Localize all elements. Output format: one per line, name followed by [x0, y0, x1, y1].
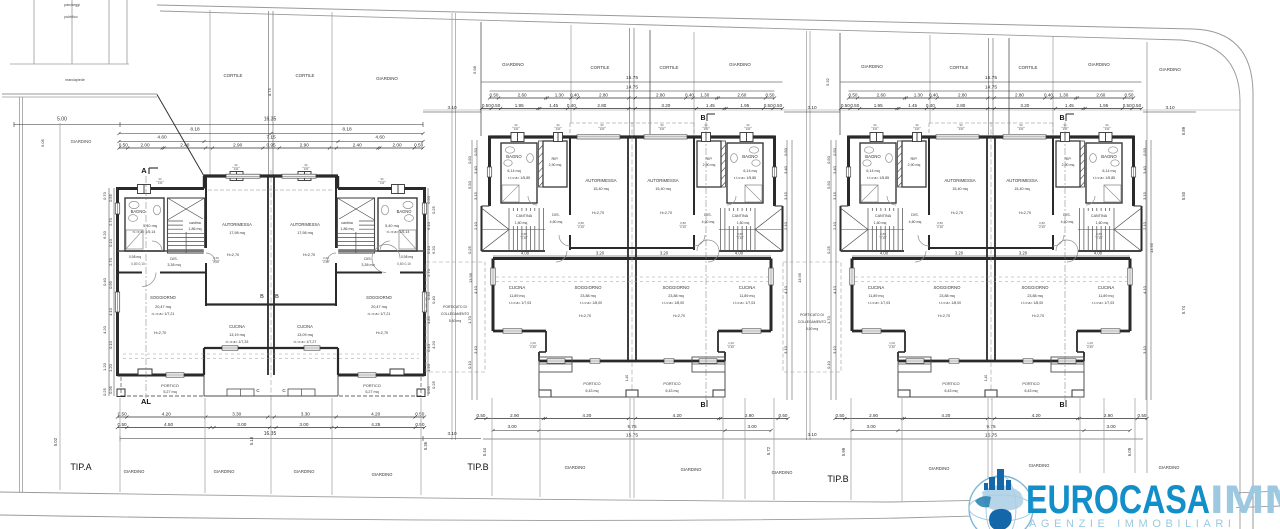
- svg-text:15,40 mq: 15,40 mq: [1014, 187, 1029, 191]
- svg-text:0.50: 0.50: [477, 413, 486, 418]
- svg-text:2,10: 2,10: [1039, 225, 1045, 229]
- svg-text:AUTORIMESSA: AUTORIMESSA: [1006, 178, 1037, 183]
- svg-text:5,27 mq: 5,27 mq: [163, 390, 176, 394]
- svg-text:15.75: 15.75: [985, 75, 998, 81]
- svg-text:6,43 mq: 6,43 mq: [586, 389, 599, 393]
- svg-text:90: 90: [874, 123, 877, 127]
- svg-text:RIP.: RIP.: [706, 157, 713, 161]
- svg-text:SOGGIORNO: SOGGIORNO: [575, 285, 603, 290]
- svg-text:240: 240: [600, 127, 605, 131]
- svg-text:CANTINA: CANTINA: [732, 214, 749, 218]
- svg-text:90: 90: [916, 123, 919, 127]
- svg-text:20,47 mq: 20,47 mq: [155, 305, 171, 309]
- svg-text:11,89 mq: 11,89 mq: [1098, 294, 1113, 298]
- svg-text:90: 90: [960, 123, 963, 127]
- svg-text:GIARDINO: GIARDINO: [502, 62, 524, 67]
- svg-text:2.70: 2.70: [426, 268, 431, 277]
- svg-text:3.15: 3.15: [1142, 191, 1147, 200]
- svg-text:GIARDINO: GIARDINO: [681, 467, 702, 472]
- svg-text:17,98 mq: 17,98 mq: [297, 231, 313, 235]
- svg-text:4.20: 4.20: [371, 412, 381, 417]
- svg-text:DIS.: DIS.: [704, 213, 711, 217]
- svg-text:PORTICO: PORTICO: [1022, 382, 1039, 386]
- svg-text:GIARDINO: GIARDINO: [1029, 463, 1050, 468]
- svg-text:0.50: 0.50: [467, 155, 472, 164]
- svg-text:B: B: [1059, 115, 1064, 122]
- svg-text:H=2,70: H=2,70: [154, 331, 166, 335]
- svg-text:2.90: 2.90: [869, 413, 878, 418]
- svg-text:r.i.≈r.a= 1/8,00: r.i.≈r.a= 1/8,00: [939, 301, 961, 305]
- svg-text:2,10: 2,10: [680, 225, 686, 229]
- svg-text:3.20: 3.20: [1019, 251, 1028, 256]
- svg-text:H=2,70: H=2,70: [938, 314, 950, 318]
- svg-text:H=2,70: H=2,70: [660, 211, 672, 215]
- svg-text:H=2,70: H=2,70: [951, 211, 963, 215]
- svg-text:4.60: 4.60: [375, 135, 385, 141]
- svg-text:4.20: 4.20: [102, 325, 107, 334]
- svg-text:r.i.≈r.a= 1/8,00: r.i.≈r.a= 1/8,00: [1021, 301, 1043, 305]
- svg-text:PORTICATO DI: PORTICATO DI: [443, 305, 467, 309]
- svg-text:H=2,70: H=2,70: [376, 331, 388, 335]
- svg-text:0.50: 0.50: [426, 195, 431, 204]
- svg-text:0.50: 0.50: [773, 103, 782, 108]
- svg-text:GIARDINO: GIARDINO: [772, 470, 793, 475]
- svg-text:4.10: 4.10: [832, 285, 837, 294]
- svg-text:2.90: 2.90: [745, 413, 754, 418]
- svg-text:3.10: 3.10: [807, 432, 817, 437]
- svg-text:GIARDINO: GIARDINO: [861, 64, 883, 69]
- svg-text:2.10: 2.10: [832, 221, 837, 230]
- svg-text:8.18: 8.18: [342, 127, 352, 133]
- svg-text:7.15: 7.15: [266, 135, 276, 141]
- svg-text:90: 90: [661, 123, 664, 127]
- svg-text:3.15: 3.15: [832, 191, 837, 200]
- svg-text:3.40: 3.40: [473, 165, 478, 174]
- svg-text:13.95: 13.95: [468, 272, 473, 283]
- svg-text:240: 240: [514, 127, 519, 131]
- svg-text:AUTORIMESSA: AUTORIMESSA: [290, 222, 320, 227]
- svg-text:B: B: [1059, 402, 1064, 409]
- svg-text:4.20: 4.20: [673, 413, 682, 418]
- svg-text:DIS.: DIS.: [911, 213, 918, 217]
- svg-text:H=2,70: H=2,70: [303, 253, 315, 257]
- svg-text:15.75: 15.75: [626, 75, 639, 81]
- svg-text:0.50: 0.50: [482, 103, 491, 108]
- svg-text:COLLEGAMENTO: COLLEGAMENTO: [441, 312, 470, 316]
- svg-text:PORTICO: PORTICO: [663, 382, 680, 386]
- svg-text:SOGGIORNO: SOGGIORNO: [150, 295, 176, 300]
- svg-text:CORTILE: CORTILE: [224, 73, 243, 78]
- svg-text:PORTICO: PORTICO: [942, 382, 959, 386]
- svg-text:IMM: IMM: [1210, 478, 1280, 522]
- svg-text:r.i.≈r.a= 1/7,03: r.i.≈r.a= 1/7,03: [1092, 301, 1114, 305]
- svg-text:0.40: 0.40: [929, 93, 938, 98]
- svg-text:5.18: 5.18: [249, 436, 254, 445]
- svg-text:H=2,70: H=2,70: [1032, 314, 1044, 318]
- svg-text:BAGNO: BAGNO: [506, 154, 522, 159]
- svg-text:4,60 mq: 4,60 mq: [550, 220, 563, 224]
- svg-text:r.i.≈r.a= 1/5,14: r.i.≈r.a= 1/5,14: [133, 230, 156, 234]
- svg-text:2,90 mq: 2,90 mq: [703, 163, 716, 167]
- svg-text:1.95: 1.95: [1099, 103, 1108, 108]
- svg-text:2,08: 2,08: [323, 260, 329, 264]
- svg-text:1,60 mq: 1,60 mq: [515, 221, 528, 225]
- svg-text:1.30: 1.30: [914, 93, 923, 98]
- svg-text:H=2,70: H=2,70: [673, 314, 685, 318]
- svg-text:6.20: 6.20: [431, 245, 436, 254]
- svg-text:1.45: 1.45: [908, 103, 917, 108]
- svg-text:4.50: 4.50: [164, 422, 174, 427]
- svg-text:2,90 mq: 2,90 mq: [908, 163, 921, 167]
- svg-text:0.25: 0.25: [431, 380, 436, 389]
- svg-text:23,88 mq: 23,88 mq: [939, 294, 954, 298]
- svg-text:B: B: [700, 402, 705, 409]
- svg-text:0.50: 0.50: [841, 103, 850, 108]
- svg-text:4.10: 4.10: [1142, 285, 1147, 294]
- svg-text:240: 240: [304, 167, 309, 171]
- svg-text:3.20: 3.20: [660, 251, 669, 256]
- svg-text:0.50: 0.50: [1138, 413, 1147, 418]
- svg-text:1.45: 1.45: [1065, 103, 1074, 108]
- svg-text:COLLEGAMENTO: COLLEGAMENTO: [798, 320, 827, 324]
- svg-text:15,40 mq: 15,40 mq: [655, 187, 670, 191]
- svg-text:r.i.≈r.a= 1/7,21: r.i.≈r.a= 1/7,21: [152, 312, 175, 316]
- svg-text:0.50: 0.50: [1142, 147, 1147, 156]
- svg-text:r.i.≈r.a= 1/5,14: r.i.≈r.a= 1/5,14: [387, 230, 410, 234]
- svg-text:240: 240: [873, 127, 878, 131]
- svg-text:BAGNO: BAGNO: [397, 209, 412, 214]
- svg-text:5.44: 5.44: [482, 447, 487, 456]
- svg-text:6.09: 6.09: [1127, 447, 1132, 456]
- svg-text:PORTICO: PORTICO: [161, 383, 179, 388]
- svg-text:6.10: 6.10: [426, 221, 431, 230]
- svg-text:0.50: 0.50: [1132, 103, 1141, 108]
- svg-text:5,40 mq: 5,40 mq: [385, 224, 399, 228]
- svg-text:cantina: cantina: [189, 221, 201, 225]
- svg-text:1,60 mq: 1,60 mq: [737, 221, 750, 225]
- svg-text:11,89 mq: 11,89 mq: [739, 294, 754, 298]
- svg-text:marciapiede: marciapiede: [65, 78, 85, 82]
- svg-text:3.10: 3.10: [1142, 345, 1147, 354]
- svg-text:3.15: 3.15: [783, 191, 788, 200]
- svg-text:CUCINA: CUCINA: [739, 285, 756, 290]
- svg-text:6,14 mq: 6,14 mq: [866, 169, 879, 173]
- svg-text:13,19 mq: 13,19 mq: [229, 333, 245, 337]
- svg-text:r.i.≈r.a= 1/8,00: r.i.≈r.a= 1/8,00: [662, 301, 684, 305]
- svg-text:PORTICATO DI: PORTICATO DI: [800, 313, 824, 317]
- svg-text:0.25: 0.25: [467, 245, 472, 254]
- svg-text:CORTILE: CORTILE: [950, 65, 969, 70]
- svg-text:1,60 mq: 1,60 mq: [1096, 221, 1109, 225]
- svg-text:2.90: 2.90: [1104, 413, 1113, 418]
- svg-text:GIARDINO: GIARDINO: [124, 469, 145, 474]
- svg-text:CANTINA: CANTINA: [875, 214, 892, 218]
- svg-text:0.25: 0.25: [431, 205, 436, 214]
- svg-text:11,89 mq: 11,89 mq: [868, 294, 883, 298]
- svg-text:4.20: 4.20: [162, 412, 172, 417]
- svg-text:0.50: 0.50: [832, 147, 837, 156]
- svg-text:2,40: 2,40: [1087, 345, 1093, 349]
- svg-text:2.40: 2.40: [353, 143, 363, 148]
- svg-text:GIARDINO: GIARDINO: [1159, 465, 1180, 470]
- svg-text:15,40 mq: 15,40 mq: [593, 187, 608, 191]
- svg-text:r.i.≈r.a= 1/7,03: r.i.≈r.a= 1/7,03: [868, 301, 890, 305]
- svg-text:3.00: 3.00: [507, 424, 517, 429]
- svg-text:1.95: 1.95: [515, 103, 524, 108]
- svg-text:r.i.≈r.a= 1/5,85: r.i.≈r.a= 1/5,85: [1093, 176, 1115, 180]
- svg-text:1.30: 1.30: [700, 93, 709, 98]
- svg-text:23,88 mq: 23,88 mq: [668, 294, 683, 298]
- svg-text:2,10: 2,10: [521, 236, 527, 240]
- svg-text:CORTILE: CORTILE: [1019, 65, 1038, 70]
- svg-text:2.90: 2.90: [300, 143, 310, 148]
- svg-text:CUCINA: CUCINA: [1098, 285, 1115, 290]
- svg-text:240: 240: [959, 127, 964, 131]
- svg-text:0.50: 0.50: [473, 147, 478, 156]
- svg-text:GIARDINO: GIARDINO: [294, 469, 315, 474]
- svg-text:2,90 mq: 2,90 mq: [1062, 163, 1075, 167]
- svg-text:GIARDINO: GIARDINO: [372, 472, 393, 477]
- svg-text:2,40: 2,40: [889, 345, 895, 349]
- svg-text:23,88 mq: 23,88 mq: [580, 294, 595, 298]
- svg-text:TIP.B: TIP.B: [467, 462, 488, 472]
- svg-text:4.00: 4.00: [880, 251, 889, 256]
- svg-text:parcheggi: parcheggi: [64, 3, 80, 7]
- svg-text:6.20: 6.20: [102, 230, 107, 239]
- svg-text:4.00: 4.00: [521, 251, 530, 256]
- svg-text:13.95: 13.95: [797, 272, 802, 283]
- svg-text:1,86 mq: 1,86 mq: [341, 227, 354, 231]
- svg-text:3.10: 3.10: [1165, 105, 1175, 110]
- svg-text:3.10: 3.10: [447, 431, 457, 436]
- svg-text:2,10: 2,10: [937, 225, 943, 229]
- svg-text:2.40: 2.40: [180, 143, 190, 148]
- svg-text:2,08: 2,08: [213, 260, 219, 264]
- svg-text:AGENZIE IMMOBILIARI: AGENZIE IMMOBILIARI: [1029, 518, 1236, 529]
- svg-text:2.00: 2.00: [140, 143, 150, 148]
- svg-text:0.50: 0.50: [783, 147, 788, 156]
- svg-text:2,10: 2,10: [578, 225, 584, 229]
- svg-text:4,60 mq: 4,60 mq: [1061, 220, 1074, 224]
- svg-text:PORTICO: PORTICO: [363, 383, 381, 388]
- svg-text:1,40: 1,40: [625, 375, 629, 381]
- svg-text:2.10: 2.10: [473, 221, 478, 230]
- svg-text:1,60 mq: 1,60 mq: [874, 221, 887, 225]
- svg-text:r.i.≈r.a= 1/5,85: r.i.≈r.a= 1/5,85: [867, 176, 889, 180]
- svg-text:3.10: 3.10: [783, 345, 788, 354]
- svg-text:5,50 mq: 5,50 mq: [806, 327, 818, 331]
- svg-text:AUTORIMESSA: AUTORIMESSA: [222, 222, 252, 227]
- svg-text:16.35: 16.35: [264, 117, 277, 123]
- svg-text:GIARDINO: GIARDINO: [214, 469, 235, 474]
- svg-text:240: 240: [234, 167, 239, 171]
- svg-text:23,88 mq: 23,88 mq: [1027, 294, 1042, 298]
- svg-text:0.50: 0.50: [836, 413, 845, 418]
- svg-text:3.00: 3.00: [299, 422, 309, 427]
- svg-text:0,80 0,10: 0,80 0,10: [397, 262, 411, 266]
- svg-text:GIARDINO: GIARDINO: [376, 76, 398, 81]
- svg-text:r.i.≈r.a= 1/5,85: r.i.≈r.a= 1/5,85: [508, 176, 530, 180]
- svg-text:0.10: 0.10: [467, 360, 472, 369]
- svg-text:r.i.≈r.a= 1/7,03: r.i.≈r.a= 1/7,03: [509, 301, 531, 305]
- svg-text:0.50: 0.50: [1123, 103, 1132, 108]
- svg-text:90: 90: [1020, 123, 1023, 127]
- svg-text:1.45: 1.45: [549, 103, 558, 108]
- svg-text:EUROCASA: EUROCASA: [1026, 478, 1210, 522]
- svg-text:240: 240: [704, 127, 709, 131]
- svg-text:240: 240: [915, 127, 920, 131]
- svg-text:11,89 mq: 11,89 mq: [509, 294, 524, 298]
- svg-text:2,10: 2,10: [1096, 236, 1102, 240]
- svg-text:2.90: 2.90: [233, 143, 243, 148]
- svg-text:14.75: 14.75: [626, 85, 639, 91]
- svg-text:4.10: 4.10: [783, 285, 788, 294]
- svg-text:90: 90: [747, 123, 750, 127]
- svg-text:cantina: cantina: [341, 221, 353, 225]
- svg-text:AL: AL: [141, 397, 151, 406]
- svg-text:240: 240: [746, 127, 751, 131]
- svg-text:2.80: 2.80: [597, 103, 606, 108]
- svg-text:3.40: 3.40: [832, 165, 837, 174]
- svg-text:r.i.≈r.a= 1/7,33: r.i.≈r.a= 1/7,33: [226, 340, 249, 344]
- svg-text:CORTILE: CORTILE: [660, 65, 679, 70]
- svg-text:2.80: 2.80: [1015, 93, 1024, 98]
- svg-text:140: 140: [158, 181, 163, 185]
- svg-text:3.15: 3.15: [473, 191, 478, 200]
- svg-text:90: 90: [601, 123, 604, 127]
- svg-text:240: 240: [556, 127, 561, 131]
- svg-text:0.40: 0.40: [102, 277, 107, 286]
- svg-text:5.02: 5.02: [53, 437, 58, 446]
- svg-text:5,27 mq: 5,27 mq: [365, 390, 378, 394]
- svg-text:pubblico: pubblico: [64, 15, 77, 19]
- svg-text:5.99: 5.99: [841, 447, 846, 456]
- svg-text:0.50: 0.50: [764, 103, 773, 108]
- svg-text:4.20: 4.20: [431, 340, 436, 349]
- svg-text:AUTORIMESSA: AUTORIMESSA: [944, 178, 975, 183]
- svg-text:4.85: 4.85: [426, 315, 431, 324]
- svg-text:0.10: 0.10: [826, 360, 831, 369]
- svg-text:2.60: 2.60: [737, 93, 746, 98]
- svg-text:5.50: 5.50: [467, 180, 472, 189]
- svg-text:3.30: 3.30: [301, 412, 311, 417]
- svg-text:16.35: 16.35: [264, 431, 277, 437]
- svg-text:2.80: 2.80: [599, 93, 608, 98]
- svg-text:2.10: 2.10: [1142, 221, 1147, 230]
- svg-text:2.90: 2.90: [510, 413, 519, 418]
- svg-text:0.40: 0.40: [431, 295, 436, 304]
- svg-text:1,86 mq: 1,86 mq: [189, 227, 202, 231]
- svg-text:90: 90: [515, 123, 518, 127]
- svg-text:4.20: 4.20: [582, 413, 591, 418]
- svg-text:240: 240: [660, 127, 665, 131]
- svg-text:4.00: 4.00: [1094, 251, 1103, 256]
- svg-text:5.50: 5.50: [1181, 191, 1186, 200]
- svg-text:BAGNO: BAGNO: [131, 209, 146, 214]
- svg-text:2,40: 2,40: [728, 345, 734, 349]
- svg-text:BAGNO: BAGNO: [742, 154, 758, 159]
- svg-text:5.98: 5.98: [472, 65, 477, 74]
- svg-text:AUTORIMESSA: AUTORIMESSA: [585, 178, 616, 183]
- svg-text:0.40: 0.40: [567, 103, 576, 108]
- svg-text:4.25: 4.25: [371, 422, 381, 427]
- svg-text:4.10: 4.10: [473, 285, 478, 294]
- svg-text:B: B: [700, 115, 705, 122]
- svg-text:3.10: 3.10: [807, 105, 817, 110]
- svg-text:8.18: 8.18: [190, 127, 200, 133]
- svg-text:r.i.≈r.a= 1/7,03: r.i.≈r.a= 1/7,03: [733, 301, 755, 305]
- svg-text:0.25: 0.25: [826, 245, 831, 254]
- svg-text:GIARDINO: GIARDINO: [71, 139, 92, 144]
- svg-text:3.20: 3.20: [661, 103, 670, 108]
- svg-text:6,43 mq: 6,43 mq: [666, 389, 679, 393]
- svg-text:5.50: 5.50: [826, 180, 831, 189]
- svg-text:5.05: 5.05: [40, 138, 45, 147]
- svg-text:3.40: 3.40: [783, 165, 788, 174]
- svg-text:6,43 mq: 6,43 mq: [945, 389, 958, 393]
- svg-text:5.74: 5.74: [1181, 305, 1186, 314]
- svg-text:BAGNO: BAGNO: [1101, 154, 1117, 159]
- svg-text:13,09 mq: 13,09 mq: [297, 333, 313, 337]
- svg-text:GIARDINO: GIARDINO: [565, 465, 586, 470]
- svg-text:TIP.A: TIP.A: [70, 462, 91, 472]
- svg-text:90: 90: [305, 163, 308, 167]
- svg-text:GIARDINO: GIARDINO: [929, 466, 950, 471]
- svg-text:5.00: 5.00: [57, 117, 67, 123]
- svg-text:3.00: 3.00: [237, 422, 247, 427]
- svg-text:4.00: 4.00: [735, 251, 744, 256]
- svg-text:0.70: 0.70: [102, 191, 107, 200]
- svg-text:240: 240: [1019, 127, 1024, 131]
- svg-text:RIP.: RIP.: [1065, 157, 1072, 161]
- svg-text:90: 90: [557, 123, 560, 127]
- svg-text:0.40: 0.40: [570, 93, 579, 98]
- svg-text:2.10: 2.10: [783, 221, 788, 230]
- svg-text:AUTORIMESSA: AUTORIMESSA: [647, 178, 678, 183]
- svg-text:2.80: 2.80: [958, 93, 967, 98]
- svg-text:2.60: 2.60: [877, 93, 886, 98]
- svg-text:5,50 mq: 5,50 mq: [449, 319, 461, 323]
- svg-text:B: B: [260, 294, 264, 300]
- svg-text:0,98 mq: 0,98 mq: [129, 255, 141, 259]
- svg-text:90: 90: [381, 177, 384, 181]
- svg-text:2,40: 2,40: [530, 345, 536, 349]
- svg-text:A: A: [141, 166, 147, 175]
- svg-text:SOGGIORNO: SOGGIORNO: [934, 285, 962, 290]
- svg-text:3.40: 3.40: [1142, 165, 1147, 174]
- svg-text:90: 90: [159, 177, 162, 181]
- svg-text:B: B: [275, 294, 279, 300]
- svg-text:CUCINA: CUCINA: [868, 285, 885, 290]
- svg-text:CUCINA: CUCINA: [229, 324, 245, 329]
- svg-text:20,47 mq: 20,47 mq: [371, 305, 387, 309]
- svg-text:r.i.≈r.a= 1/5,85: r.i.≈r.a= 1/5,85: [734, 176, 756, 180]
- svg-text:1.30: 1.30: [555, 93, 564, 98]
- svg-text:17,98 mq: 17,98 mq: [229, 231, 245, 235]
- svg-text:RIP.: RIP.: [552, 157, 559, 161]
- svg-text:3.10: 3.10: [447, 105, 457, 110]
- svg-text:GIARDINO: GIARDINO: [1159, 67, 1181, 72]
- svg-text:9.75: 9.75: [627, 424, 637, 429]
- svg-text:r.i.≈r.a= 1/7,27: r.i.≈r.a= 1/7,27: [294, 340, 317, 344]
- svg-text:2.00: 2.00: [392, 143, 402, 148]
- svg-text:3.20: 3.20: [1020, 103, 1029, 108]
- svg-text:15,40 mq: 15,40 mq: [952, 187, 967, 191]
- svg-text:CORTILE: CORTILE: [296, 73, 315, 78]
- svg-text:5.89: 5.89: [1181, 126, 1186, 135]
- svg-text:SOGGIORNO: SOGGIORNO: [366, 295, 392, 300]
- svg-text:0.50: 0.50: [826, 155, 831, 164]
